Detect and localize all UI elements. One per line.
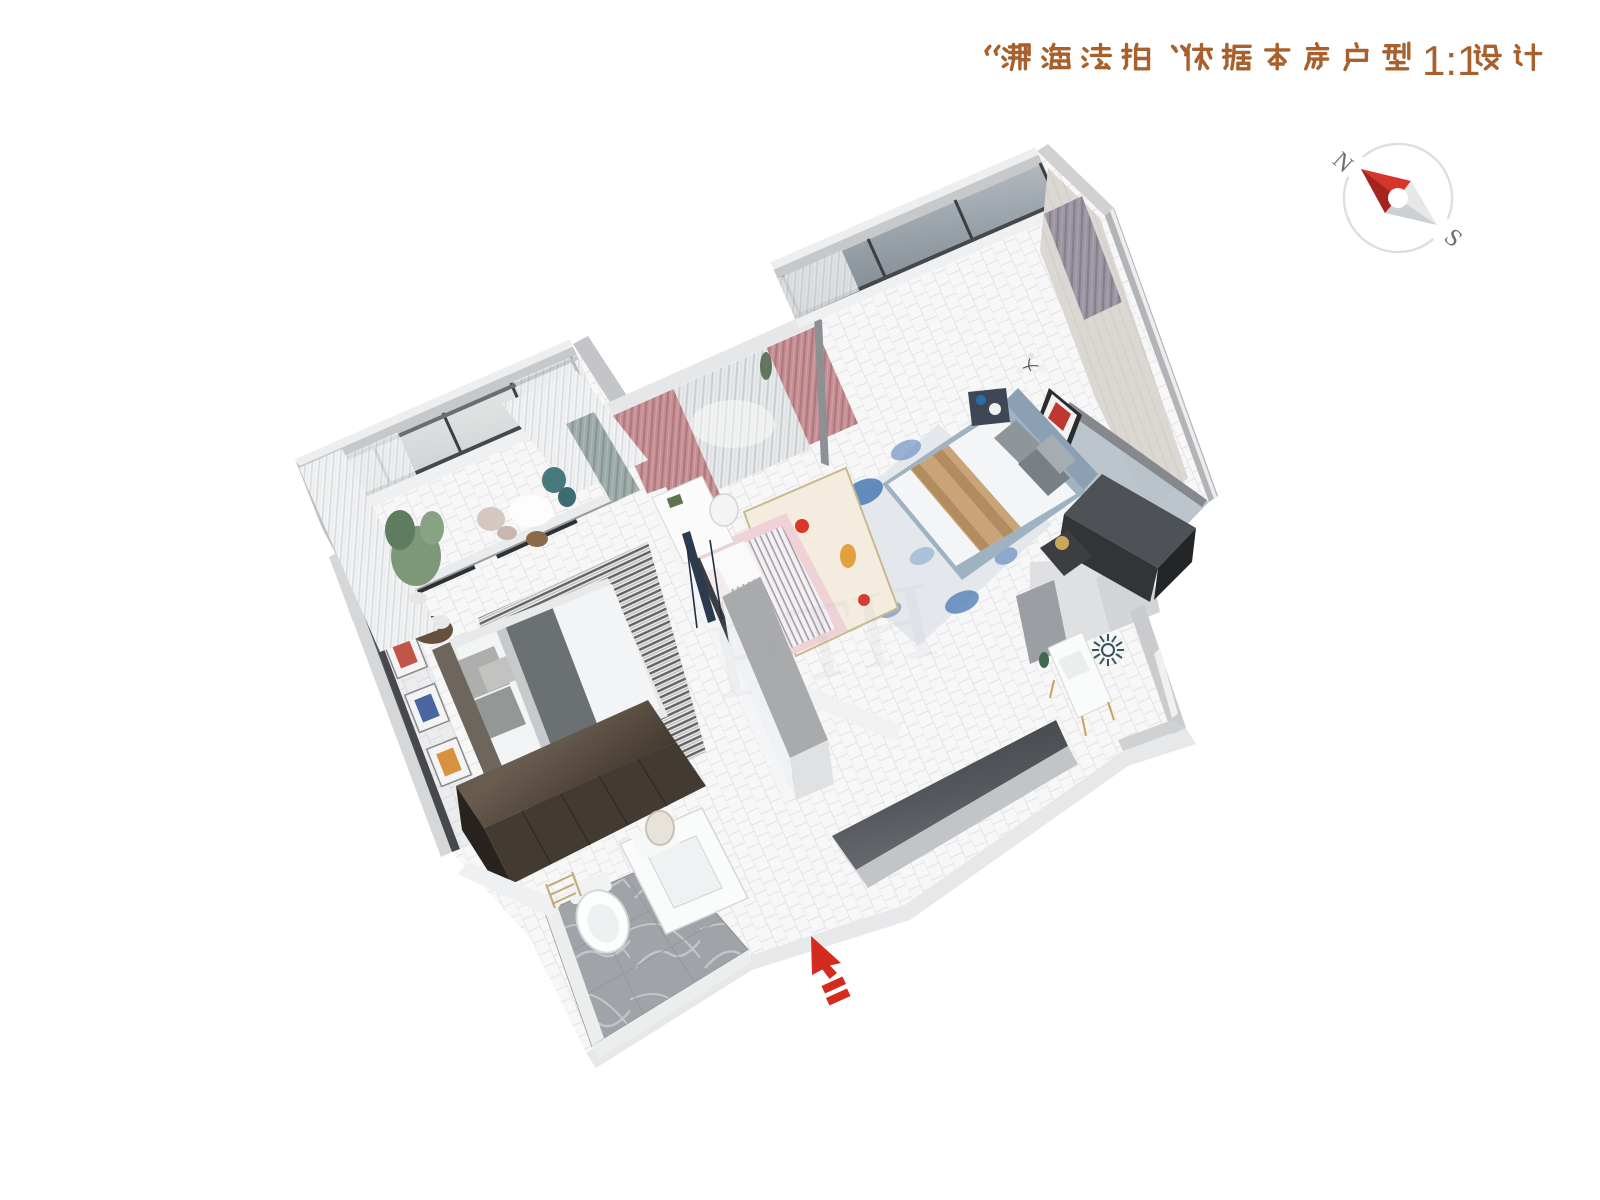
svg-text:N: N xyxy=(1327,147,1357,178)
svg-text:S: S xyxy=(1439,224,1467,253)
svg-text:1:1: 1:1 xyxy=(1422,37,1480,84)
